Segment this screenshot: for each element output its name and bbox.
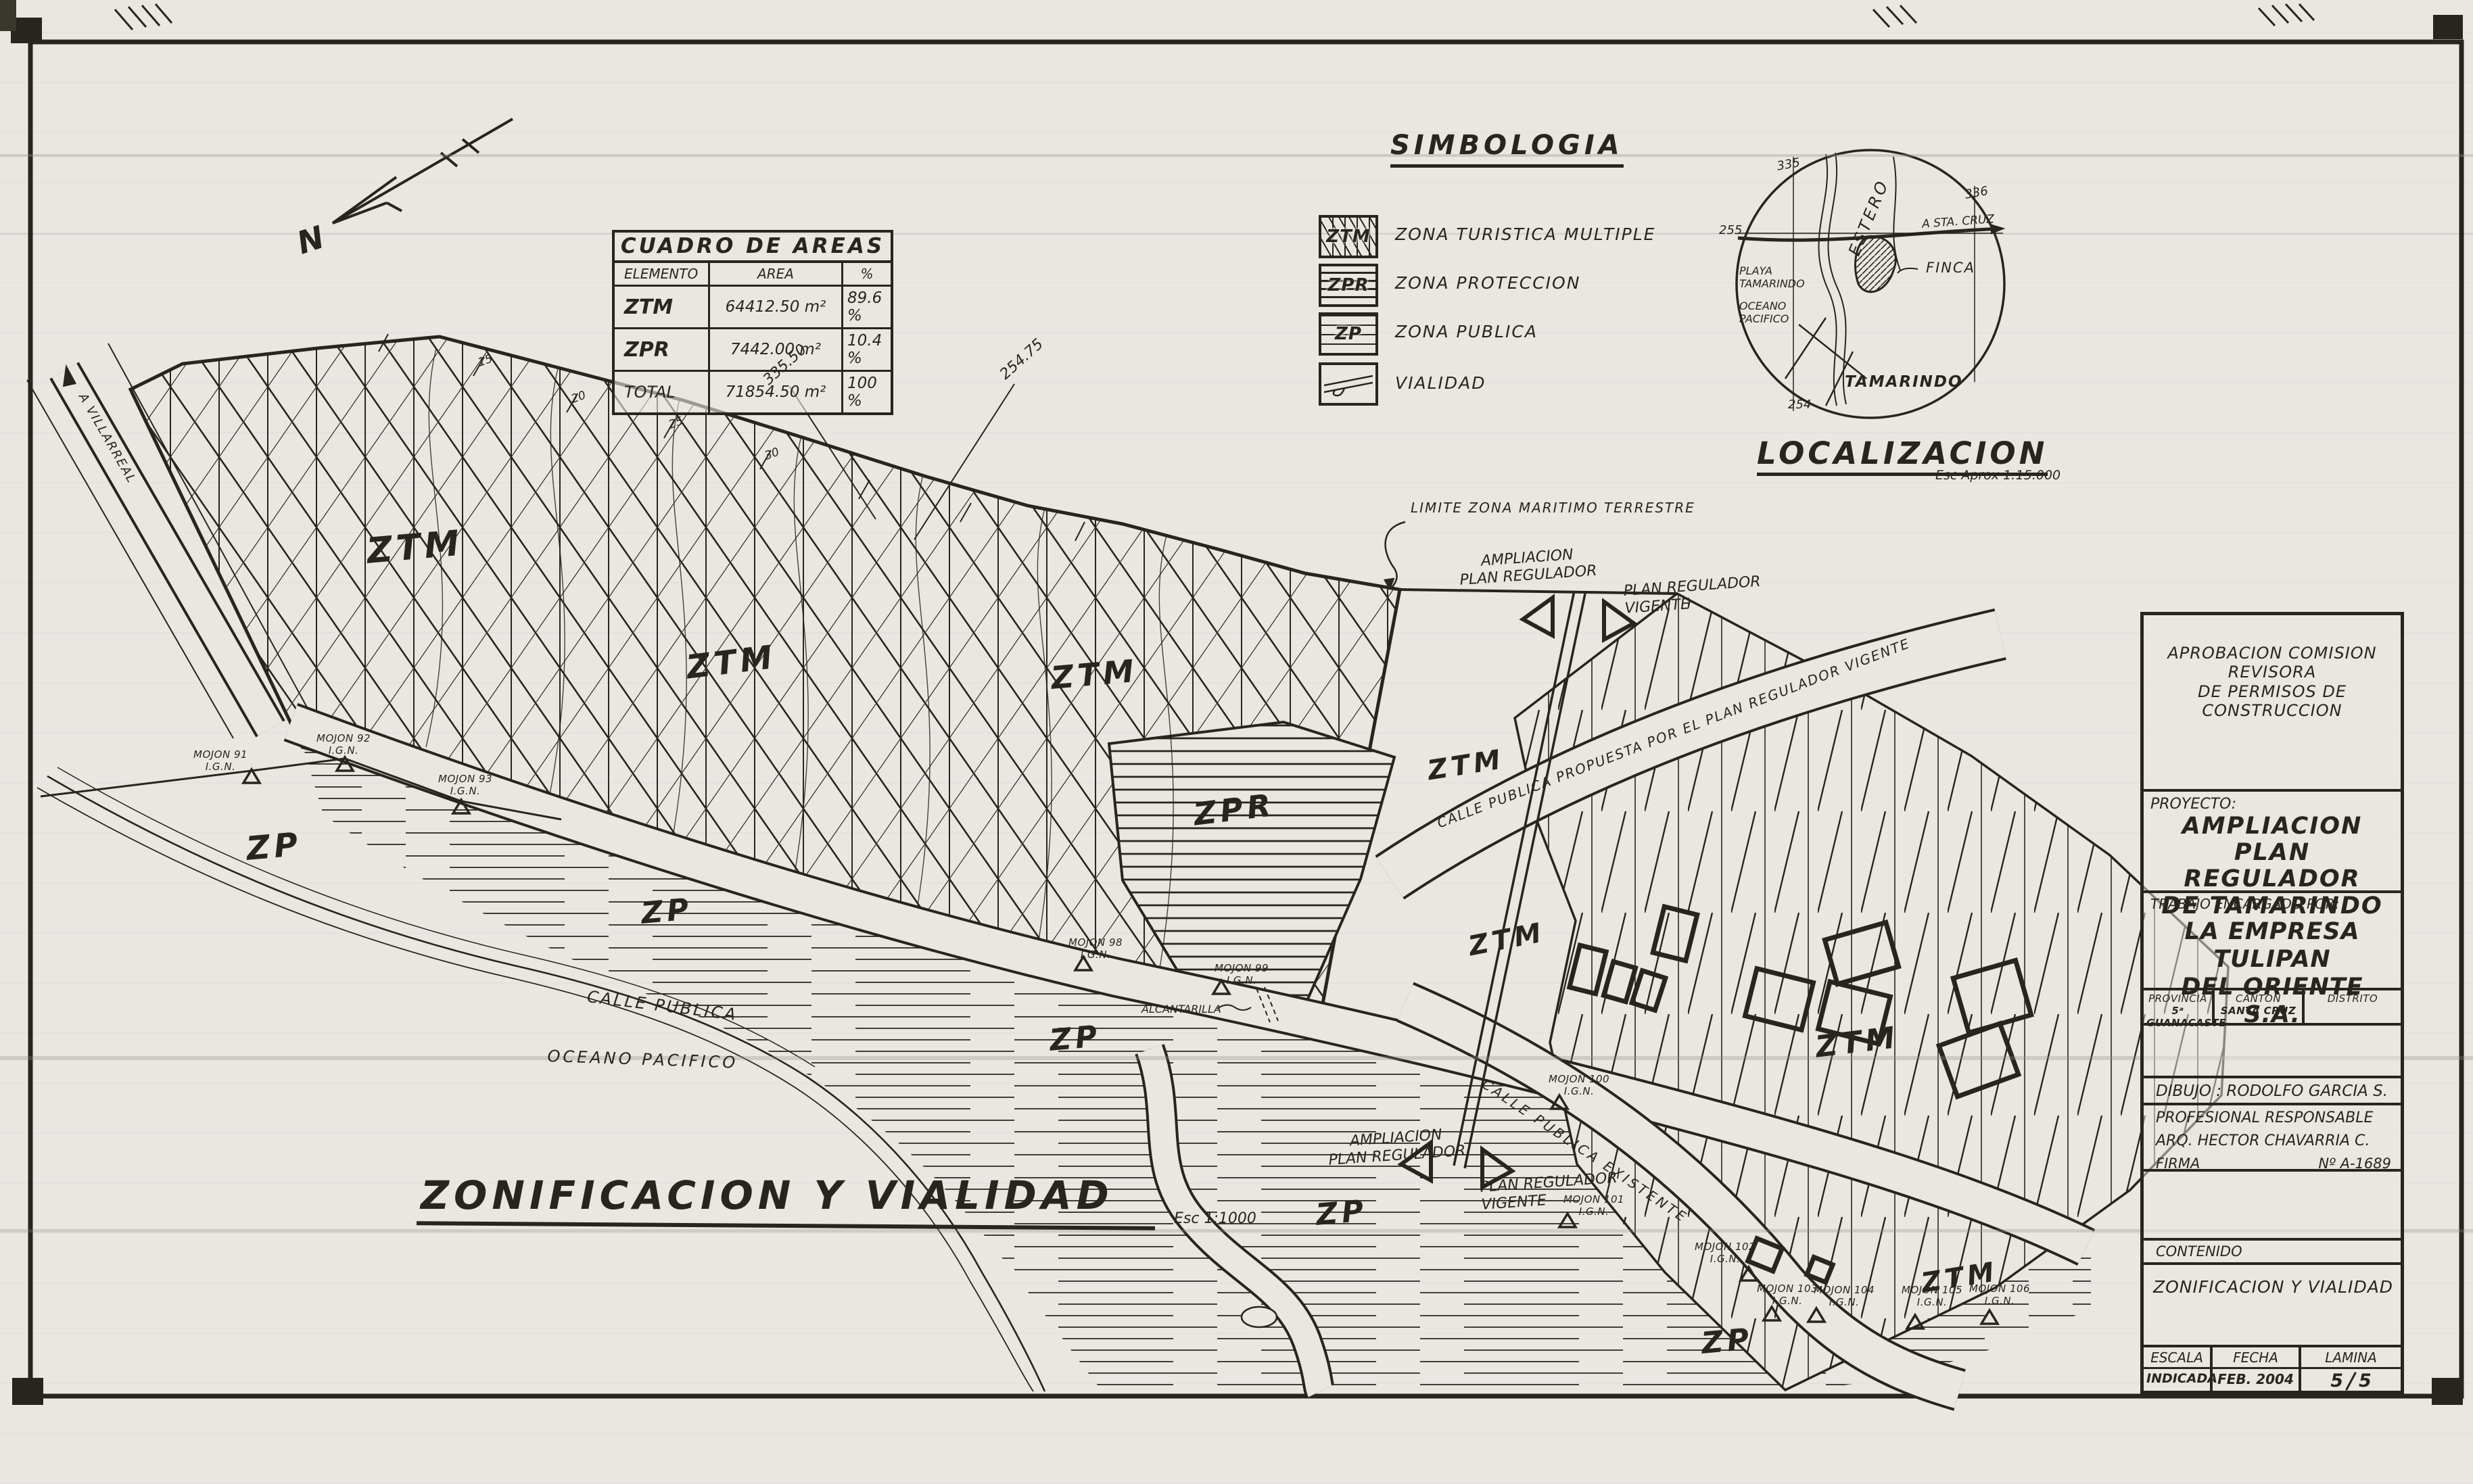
tamarindo-label: TAMARINDO — [1845, 373, 1963, 391]
zp-label: ZP — [245, 825, 304, 869]
canton-value: SANTA CRUZ — [2217, 1005, 2299, 1017]
zp-label: ZP — [640, 892, 694, 931]
trabajo-label: TRABAJO ENCARGADO POR: — [2150, 896, 2394, 913]
mojon-name: MOJON 91 — [193, 748, 248, 761]
legend-swatch-ztm: ZTM — [1319, 215, 1378, 258]
row-ztm-code: ZTM — [615, 287, 710, 327]
stamp-box — [2144, 1026, 2401, 1078]
legend-swatch-zp: ZP — [1319, 312, 1378, 356]
mojon-agency: I.G.N. — [206, 761, 236, 773]
approval-section: APROBACION COMISION REVISORA DE PERMISOS… — [2144, 615, 2401, 792]
blueprint-sheet: CUADRO DE AREAS ELEMENTO AREA % ZTM 6441… — [0, 0, 2473, 1484]
row-total-pct: 100 % — [843, 372, 891, 412]
lamina-total: 5 — [2359, 1370, 2372, 1391]
row-zpr-code: ZPR — [615, 329, 710, 370]
mojon-label: MOJON 106I.G.N. — [1969, 1283, 2030, 1307]
zp-label: ZP — [1315, 1193, 1369, 1232]
drawing-scale: Esc 1:1000 — [1174, 1210, 1256, 1228]
mojon-label: MOJON 104I.G.N. — [1814, 1285, 1875, 1308]
ztm-label: ZTM — [365, 523, 465, 573]
escala-row: ESCALA INDICADA FECHA FEB. 2004 LAMINA 5… — [2144, 1347, 2401, 1391]
registro-number: Nº A-1689 — [2318, 1155, 2391, 1172]
fecha-label: FECHA — [2213, 1349, 2299, 1369]
escala-label: ESCALA — [2144, 1349, 2210, 1369]
mojon-label: MOJON 101I.G.N. — [1563, 1194, 1624, 1218]
canton-label: CANTON — [2217, 992, 2299, 1005]
canton-cell: CANTON SANTA CRUZ — [2215, 990, 2305, 1023]
dibujo-credit: DIBUJO : RODOLFO GARCIA S. — [2156, 1082, 2401, 1101]
finca-label: FINCA — [1926, 260, 1975, 277]
mojon-label: MOJON 91I.G.N. — [193, 749, 248, 773]
oceano-inset-label: OCEANO PACIFICO — [1739, 300, 1789, 326]
row-total-code: TOTAL — [615, 372, 710, 412]
mojon-name: MOJON 103 — [1757, 1283, 1818, 1295]
row-zpr-pct: 10.4 % — [843, 329, 891, 370]
profesional-section: PROFESIONAL RESPONSABLE ARQ. HECTOR CHAV… — [2144, 1105, 2401, 1172]
legend-title: SIMBOLOGIA — [1390, 130, 1624, 168]
col-area: AREA — [710, 263, 843, 285]
provincia-cell: PROVINCIA 5ᵃ GUANACASTE — [2144, 990, 2215, 1023]
profesional-name: ARQ. HECTOR CHAVARRIA C. — [2156, 1132, 2391, 1150]
ztm-label: ZTM — [1050, 652, 1139, 696]
lamina-label: LAMINA — [2301, 1349, 2401, 1369]
mojon-name: MOJON 93 — [438, 773, 492, 785]
legend-label-vialidad: VIALIDAD — [1395, 373, 1486, 393]
legend-label-ztm: ZONA TURISTICA MULTIPLE — [1395, 224, 1655, 245]
legend-code: ZTM — [1326, 226, 1370, 247]
playa-label: PLAYA TAMARINDO — [1739, 265, 1805, 291]
mojon-agency: I.G.N. — [450, 785, 481, 797]
mojon-name: MOJON 105 — [1902, 1284, 1962, 1296]
row-ztm-area: 64412.50 m² — [710, 287, 843, 327]
grid-255: 255 — [1719, 223, 1742, 237]
table-row: ZTM 64412.50 m² 89.6 % — [615, 287, 891, 329]
mojon-label: MOJON 99I.G.N. — [1215, 963, 1269, 986]
zp-label: ZP — [1700, 1322, 1754, 1361]
limite-leader — [1385, 522, 1405, 590]
contenido-value: ZONIFICACION Y VIALIDAD — [2153, 1277, 2401, 1297]
table-row: TOTAL 71854.50 m² 100 % — [615, 372, 891, 412]
mojon-agency: I.G.N. — [1985, 1295, 2015, 1307]
mojon-name: MOJON 101 — [1563, 1193, 1624, 1205]
legend-code: ZP — [1335, 324, 1362, 344]
legend-label-zpr: ZONA PROTECCION — [1395, 273, 1580, 293]
trabajo-section: TRABAJO ENCARGADO POR: LA EMPRESA TULIPA… — [2144, 893, 2401, 990]
mojon-name: MOJON 100 — [1549, 1073, 1609, 1085]
mojon-name: MOJON 102 — [1695, 1241, 1756, 1253]
mojon-agency: I.G.N. — [1564, 1085, 1595, 1097]
provincia-label: PROVINCIA — [2146, 992, 2209, 1005]
grid-254: 254 — [1788, 398, 1811, 412]
table-row: ZPR 7442.00 m² 10.4 % — [615, 329, 891, 372]
zp-label: ZP — [1048, 1019, 1102, 1058]
mojon-agency: I.G.N. — [1710, 1253, 1741, 1265]
road-icon — [1324, 368, 1373, 400]
contenido-label: CONTENIDO — [2156, 1243, 2401, 1260]
mojon-label: MOJON 98I.G.N. — [1068, 937, 1123, 961]
legend-swatch-vialidad — [1319, 362, 1378, 406]
mojon-agency: I.G.N. — [1227, 974, 1257, 986]
mojon-agency: I.G.N. — [1829, 1296, 1860, 1308]
corner-scribbles — [115, 4, 2314, 30]
areas-table-header: ELEMENTO AREA % — [615, 263, 891, 287]
mojon-label: MOJON 100I.G.N. — [1549, 1074, 1609, 1097]
mojon-label: MOJON 102I.G.N. — [1695, 1241, 1756, 1265]
mojon-agency: I.G.N. — [1917, 1296, 1948, 1308]
areas-table: CUADRO DE AREAS ELEMENTO AREA % ZTM 6441… — [612, 230, 893, 415]
firma-label: FIRMA — [2156, 1155, 2200, 1172]
proyecto-label: PROYECTO: — [2150, 796, 2394, 813]
contenido-body: ZONIFICACION Y VIALIDAD — [2144, 1265, 2401, 1347]
localizacion-scale: Esc Aprox 1:15.000 — [1935, 468, 2060, 483]
fecha-value: FEB. 2004 — [2215, 1371, 2296, 1387]
areas-table-title: CUADRO DE AREAS — [615, 233, 891, 263]
signature-box — [2144, 1172, 2401, 1241]
north-compass — [333, 119, 513, 223]
plan-linework — [0, 0, 2473, 1484]
title-block: APROBACION COMISION REVISORA DE PERMISOS… — [2140, 612, 2404, 1394]
alcantarilla-label: ALCANTARILLA — [1141, 1003, 1221, 1016]
dibujo-section: DIBUJO : RODOLFO GARCIA S. — [2144, 1078, 2401, 1105]
approval-note: APROBACION COMISION REVISORA DE PERMISOS… — [2144, 644, 2401, 720]
legend-swatch-zpr: ZPR — [1319, 264, 1378, 307]
lamina-cell: LAMINA 5 5 — [2301, 1347, 2401, 1391]
lamina-sheet: 5 — [2330, 1370, 2343, 1391]
mojon-name: MOJON 106 — [1969, 1283, 2030, 1295]
col-elemento: ELEMENTO — [615, 263, 710, 285]
legend-label-zp: ZONA PUBLICA — [1395, 322, 1538, 342]
mojon-name: MOJON 98 — [1068, 936, 1123, 949]
legend-code: ZPR — [1328, 275, 1369, 295]
mojon-name: MOJON 92 — [316, 732, 371, 744]
mojon-label: MOJON 92I.G.N. — [316, 733, 371, 757]
col-pct: % — [843, 263, 891, 285]
fecha-cell: FECHA FEB. 2004 — [2213, 1347, 2301, 1391]
mojon-agency: I.G.N. — [1772, 1295, 1803, 1307]
mojon-label: MOJON 103I.G.N. — [1757, 1283, 1818, 1307]
escala-value: INDICADA — [2146, 1371, 2207, 1386]
mojon-agency: I.G.N. — [1081, 949, 1111, 961]
location-row: PROVINCIA 5ᵃ GUANACASTE CANTON SANTA CRU… — [2144, 990, 2401, 1026]
row-ztm-pct: 89.6 % — [843, 287, 891, 327]
mojon-agency: I.G.N. — [329, 744, 359, 757]
mojon-label: MOJON 105I.G.N. — [1902, 1285, 1962, 1308]
proyecto-section: PROYECTO: AMPLIACION PLAN REGULADOR DE T… — [2144, 792, 2401, 893]
distrito-label: DISTRITO — [2307, 992, 2398, 1005]
drawing-title: ZONIFICACION Y VIALIDAD — [421, 1172, 1114, 1218]
lamina-slash — [2345, 1372, 2357, 1391]
mojon-name: MOJON 99 — [1215, 962, 1269, 974]
limite-zmt-label: LIMITE ZONA MARITIMO TERRESTRE — [1411, 500, 1695, 517]
profesional-label: PROFESIONAL RESPONSABLE — [2156, 1109, 2391, 1127]
mojon-label: MOJON 93I.G.N. — [438, 773, 492, 797]
contenido-header: CONTENIDO — [2144, 1241, 2401, 1265]
mojon-name: MOJON 104 — [1814, 1284, 1875, 1296]
escala-cell: ESCALA INDICADA — [2144, 1347, 2213, 1391]
mojon-agency: I.G.N. — [1579, 1205, 1609, 1218]
distrito-cell: DISTRITO — [2305, 990, 2401, 1023]
